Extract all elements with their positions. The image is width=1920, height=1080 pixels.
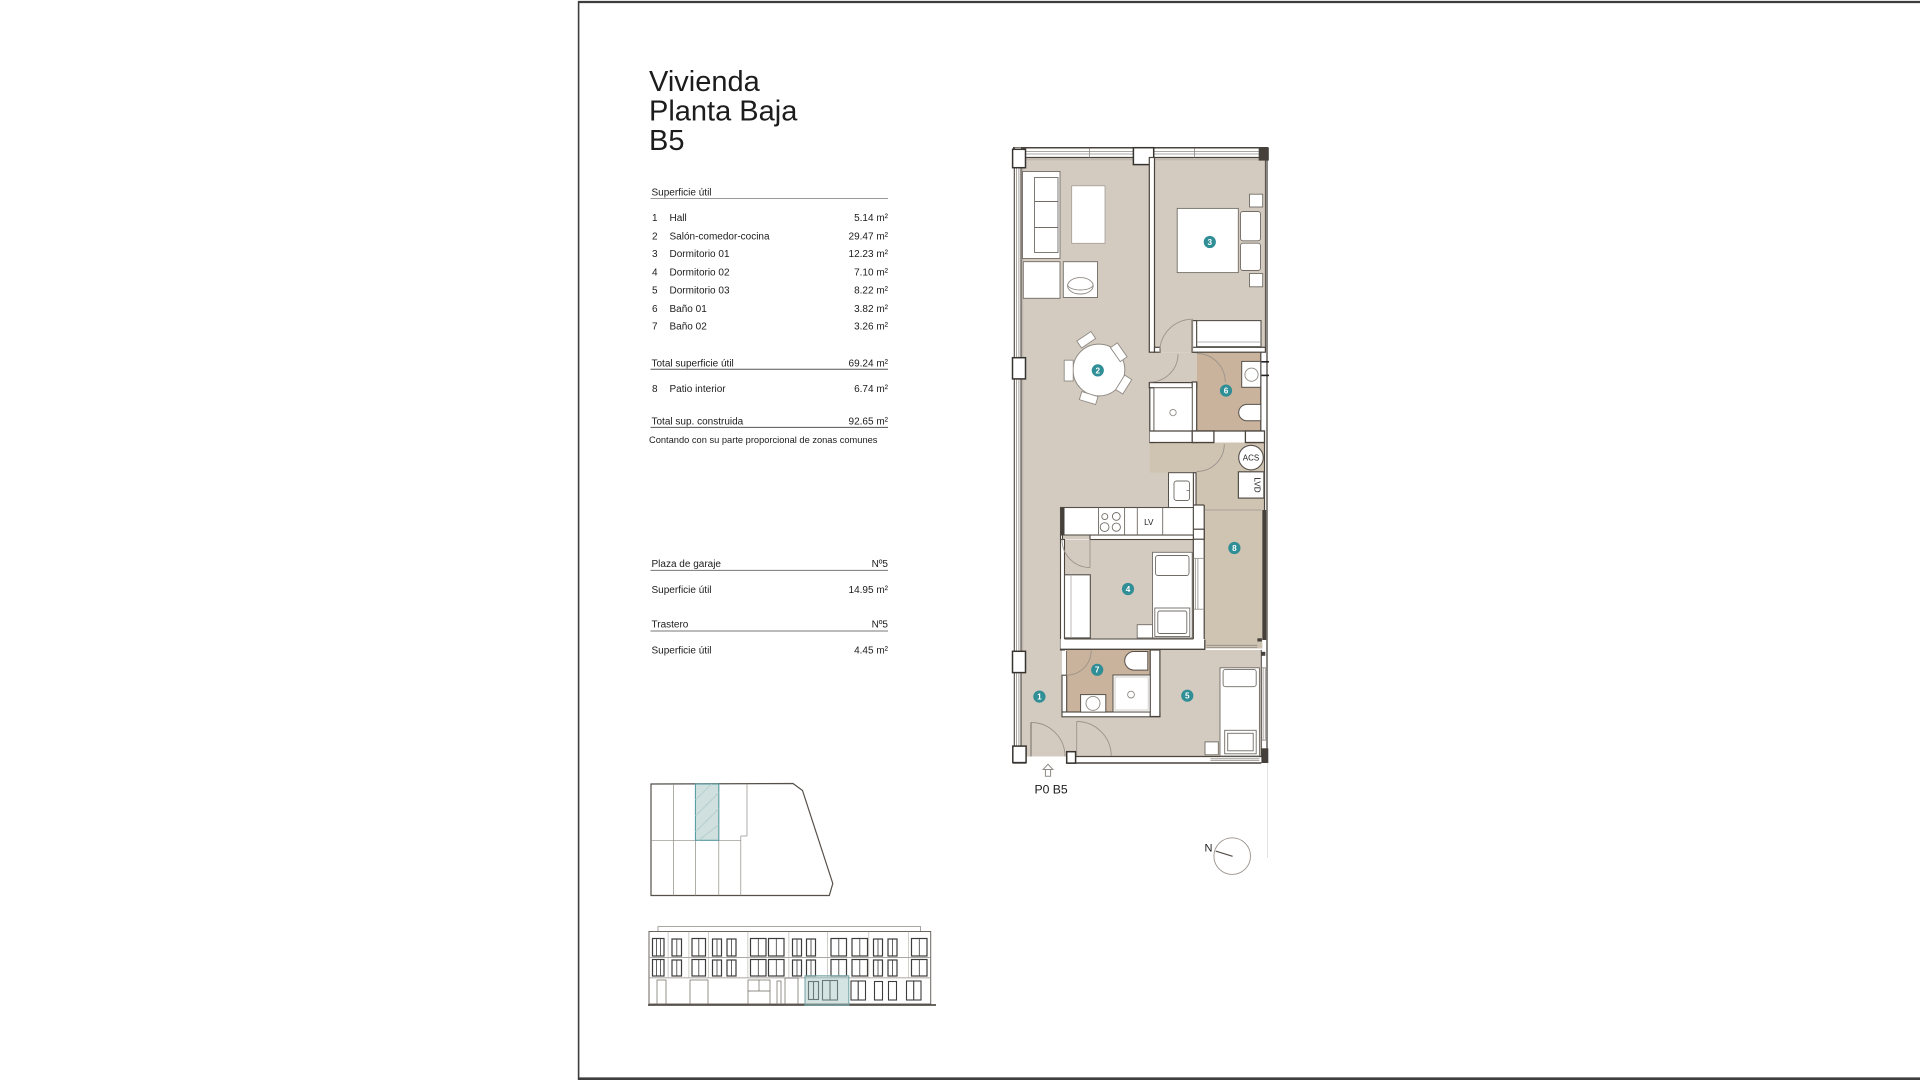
svg-text:4.45 m²: 4.45 m² <box>854 646 889 657</box>
svg-text:Dormitorio 03: Dormitorio 03 <box>670 286 730 297</box>
svg-text:6.74 m²: 6.74 m² <box>854 384 889 395</box>
svg-text:Patio interior: Patio interior <box>670 384 727 395</box>
svg-text:Total superficie útil: Total superficie útil <box>652 359 734 370</box>
svg-text:3.82 m²: 3.82 m² <box>854 304 889 315</box>
svg-text:Vivienda: Vivienda <box>649 66 761 98</box>
svg-text:LV: LV <box>1144 518 1154 527</box>
svg-text:4: 4 <box>1126 585 1131 594</box>
svg-text:29.47 m²: 29.47 m² <box>849 231 889 242</box>
svg-text:1: 1 <box>652 213 658 224</box>
svg-text:2: 2 <box>652 231 658 242</box>
svg-text:4: 4 <box>652 267 658 278</box>
svg-text:3: 3 <box>652 249 658 260</box>
svg-text:69.24 m²: 69.24 m² <box>849 359 889 370</box>
svg-text:Dormitorio 02: Dormitorio 02 <box>670 267 730 278</box>
svg-text:Baño 02: Baño 02 <box>670 322 708 333</box>
svg-text:Trastero: Trastero <box>652 620 689 631</box>
svg-text:8: 8 <box>652 384 658 395</box>
svg-text:3: 3 <box>1208 238 1213 247</box>
svg-text:8: 8 <box>1232 544 1237 553</box>
svg-text:5: 5 <box>1185 692 1190 701</box>
svg-text:Superficie útil: Superficie útil <box>652 646 712 657</box>
svg-text:Hall: Hall <box>670 213 687 224</box>
svg-text:ACS: ACS <box>1243 454 1259 463</box>
svg-text:Dormitorio 01: Dormitorio 01 <box>670 249 730 260</box>
svg-text:Nº5: Nº5 <box>872 620 889 631</box>
svg-text:N: N <box>1205 843 1213 855</box>
svg-text:7: 7 <box>1095 666 1100 675</box>
svg-text:5.14 m²: 5.14 m² <box>854 213 889 224</box>
svg-text:92.65 m²: 92.65 m² <box>849 416 889 427</box>
svg-text:Superficie útil: Superficie útil <box>652 585 712 596</box>
svg-text:P0 B5: P0 B5 <box>1035 783 1068 797</box>
svg-text:Planta Baja: Planta Baja <box>649 96 798 128</box>
svg-text:Contando con su parte proporci: Contando con su parte proporcional de zo… <box>649 435 878 445</box>
svg-text:Superficie útil: Superficie útil <box>652 188 712 199</box>
svg-text:3.26 m²: 3.26 m² <box>854 322 889 333</box>
svg-text:Salón-comedor-cocina: Salón-comedor-cocina <box>670 231 770 242</box>
svg-text:7.10 m²: 7.10 m² <box>854 267 889 278</box>
svg-text:Nº5: Nº5 <box>872 559 889 570</box>
svg-text:LVD: LVD <box>1252 477 1261 492</box>
svg-text:5: 5 <box>652 286 658 297</box>
svg-text:7: 7 <box>652 322 658 333</box>
svg-text:12.23 m²: 12.23 m² <box>849 249 889 260</box>
svg-text:Total sup. construida: Total sup. construida <box>652 416 744 427</box>
svg-text:14.95 m²: 14.95 m² <box>849 585 889 596</box>
svg-text:8.22 m²: 8.22 m² <box>854 286 889 297</box>
svg-text:6: 6 <box>1224 387 1229 396</box>
svg-text:B5: B5 <box>649 125 684 157</box>
svg-text:Baño 01: Baño 01 <box>670 304 708 315</box>
svg-text:Plaza de garaje: Plaza de garaje <box>652 559 722 570</box>
svg-text:6: 6 <box>652 304 658 315</box>
svg-text:1: 1 <box>1037 693 1042 702</box>
svg-text:2: 2 <box>1096 366 1101 375</box>
